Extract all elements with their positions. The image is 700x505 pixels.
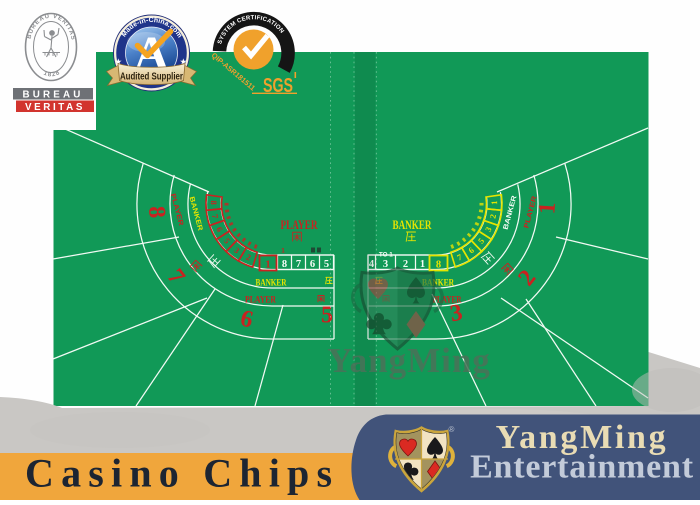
svg-text:6: 6: [310, 259, 315, 270]
svg-text:1: 1: [420, 259, 425, 270]
svg-text:7: 7: [296, 259, 301, 270]
svg-text:5: 5: [324, 259, 329, 270]
svg-text:2: 2: [403, 259, 408, 270]
svg-text:8: 8: [282, 259, 287, 270]
svg-text:®: ®: [449, 425, 455, 434]
svg-text:1: 1: [265, 259, 270, 270]
svg-text:TO 1: TO 1: [379, 252, 393, 259]
svg-text:Entertainment: Entertainment: [470, 449, 694, 486]
svg-text:Casino Chips: Casino Chips: [25, 451, 339, 496]
svg-text:8: 8: [143, 205, 170, 219]
svg-text:PLAYER: PLAYER: [245, 296, 276, 306]
svg-text:VERITAS: VERITAS: [25, 102, 85, 113]
svg-text:8: 8: [209, 200, 219, 204]
svg-text:Audited Supplier: Audited Supplier: [120, 72, 183, 83]
svg-text:3: 3: [383, 259, 388, 270]
svg-text:YangMing: YangMing: [327, 341, 491, 380]
svg-text:1: 1: [534, 201, 561, 215]
svg-text:BANKER: BANKER: [256, 279, 287, 289]
svg-text:8: 8: [436, 259, 441, 270]
svg-text:BANKER: BANKER: [393, 217, 432, 232]
svg-text:5: 5: [321, 303, 333, 329]
svg-text:BUREAU: BUREAU: [22, 89, 83, 100]
svg-text:PLAYER: PLAYER: [281, 217, 318, 232]
svg-text:1: 1: [489, 200, 499, 204]
